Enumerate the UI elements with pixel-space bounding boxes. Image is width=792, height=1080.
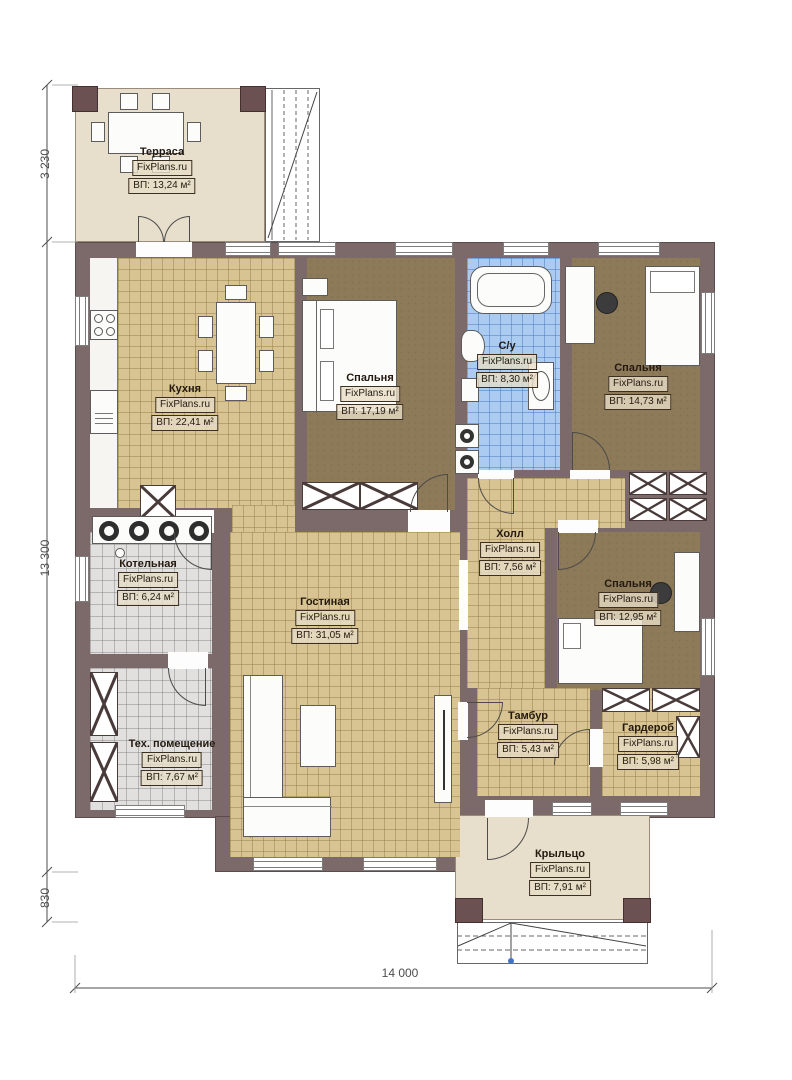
- brand-watermark: FixPlans.ru: [295, 610, 355, 626]
- room-name: Котельная: [119, 558, 177, 570]
- room-label-terrace: Терраса FixPlans.ru ВП: 13,24 м²: [128, 146, 195, 194]
- bedroom1-wardrobe: [360, 482, 418, 510]
- room-name: Холл: [496, 528, 524, 540]
- brand-watermark: FixPlans.ru: [498, 724, 558, 740]
- brand-watermark: FixPlans.ru: [477, 354, 537, 370]
- porch-steps: [457, 922, 648, 964]
- room-name: Тех. помещение: [129, 738, 216, 750]
- room-label-living: Гостиная FixPlans.ru ВП: 31,05 м²: [291, 596, 358, 644]
- room-label-boiler: Котельная FixPlans.ru ВП: 6,24 м²: [117, 558, 179, 606]
- window-bathroom: [503, 242, 549, 256]
- brand-watermark: FixPlans.ru: [598, 592, 658, 608]
- window-kitchen-left: [75, 296, 89, 346]
- room-label-tech: Тех. помещение FixPlans.ru ВП: 7,67 м²: [129, 738, 216, 786]
- kitchen-chair: [225, 285, 247, 300]
- window-tambour-bottom: [552, 802, 592, 816]
- room-area: ВП: 6,24 м²: [117, 590, 179, 606]
- room-name: Кухня: [169, 383, 201, 395]
- room-area: ВП: 12,95 м²: [594, 610, 661, 626]
- window-tech-bottom: [115, 805, 185, 818]
- brand-watermark: FixPlans.ru: [480, 542, 540, 558]
- porch-post-right: [623, 898, 651, 923]
- bedroom2-door-gap: [570, 470, 610, 479]
- room-label-tambour: Тамбур FixPlans.ru ВП: 5,43 м²: [497, 710, 559, 758]
- kitchen-living-opening: [232, 505, 295, 535]
- window-living-1: [253, 857, 323, 871]
- brand-watermark: FixPlans.ru: [155, 397, 215, 413]
- room-name: Тамбур: [508, 710, 548, 722]
- terrace-chair: [152, 93, 170, 110]
- front-door-gap: [485, 800, 533, 817]
- room-label-wardrobe: Гардероб FixPlans.ru ВП: 5,98 м²: [617, 722, 679, 770]
- dryer-machine: [455, 450, 479, 474]
- living-hall-opening: [459, 560, 468, 630]
- terrace-chair: [120, 93, 138, 110]
- single-bed: [645, 266, 700, 366]
- tech-door-gap: [168, 652, 208, 669]
- dim-total-width: 14 000: [355, 966, 445, 980]
- room-area: ВП: 22,41 м²: [151, 415, 218, 431]
- brand-watermark: FixPlans.ru: [608, 376, 668, 392]
- desk: [674, 552, 700, 632]
- room-name: Гостиная: [300, 596, 350, 608]
- room-area: ВП: 7,91 м²: [529, 880, 591, 896]
- tech-storage: [90, 742, 118, 802]
- brand-watermark: FixPlans.ru: [618, 736, 678, 752]
- tech-storage: [90, 672, 118, 736]
- hall-closet: [629, 472, 667, 495]
- room-name: Спальня: [346, 372, 394, 384]
- desk-chair: [596, 292, 618, 314]
- bedroom1-door-gap: [408, 510, 450, 532]
- brand-watermark: FixPlans.ru: [340, 386, 400, 402]
- kitchen-chair: [198, 350, 213, 372]
- room-area: ВП: 31,05 м²: [291, 628, 358, 644]
- hall-closet: [669, 472, 707, 495]
- wardrobe-shelf: [676, 716, 700, 758]
- room-area: ВП: 8,30 м²: [476, 372, 538, 388]
- window-top-2: [278, 242, 336, 256]
- window-wardrobe-bottom: [620, 802, 668, 816]
- terrace-stairs: [265, 88, 320, 242]
- kitchen-chair: [259, 316, 274, 338]
- brand-watermark: FixPlans.ru: [530, 862, 590, 878]
- room-area: ВП: 7,67 м²: [141, 770, 203, 786]
- desk: [565, 266, 595, 344]
- room-label-bathroom: С/у FixPlans.ru ВП: 8,30 м²: [476, 340, 538, 388]
- room-label-hall: Холл FixPlans.ru ВП: 7,56 м²: [479, 528, 541, 576]
- room-label-bedroom2: Спальня FixPlans.ru ВП: 14,73 м²: [604, 362, 671, 410]
- bathtub: [470, 266, 552, 314]
- room-name: Спальня: [604, 578, 652, 590]
- room-label-bedroom1: Спальня FixPlans.ru ВП: 17,19 м²: [336, 372, 403, 420]
- brand-watermark: FixPlans.ru: [132, 160, 192, 176]
- washing-machine: [455, 424, 479, 448]
- kitchen-chair: [225, 386, 247, 401]
- coffee-table: [300, 705, 336, 767]
- room-name: Терраса: [140, 146, 184, 158]
- room-area: ВП: 5,98 м²: [617, 754, 679, 770]
- room-area: ВП: 7,56 м²: [479, 560, 541, 576]
- brand-watermark: FixPlans.ru: [118, 572, 178, 588]
- kitchen-chair: [259, 350, 274, 372]
- brand-watermark: FixPlans.ru: [142, 752, 202, 768]
- terrace-chair: [91, 122, 105, 142]
- sofa-chaise: [243, 797, 331, 837]
- room-area: ВП: 5,43 м²: [497, 742, 559, 758]
- kitchen-chair: [198, 316, 213, 338]
- window-living-2: [363, 857, 437, 871]
- terrace-post-left: [72, 86, 98, 112]
- room-name: Гардероб: [622, 722, 674, 734]
- window-bedroom2-top: [598, 242, 660, 256]
- kitchen-cabinet: [90, 390, 118, 434]
- room-label-porch: Крыльцо FixPlans.ru ВП: 7,91 м²: [529, 848, 591, 896]
- room-label-bedroom3: Спальня FixPlans.ru ВП: 12,95 м²: [594, 578, 661, 626]
- window-bedroom1: [395, 242, 453, 256]
- room-name: Спальня: [614, 362, 662, 374]
- wardrobe-shelf: [652, 688, 700, 712]
- tv-unit: [434, 695, 452, 803]
- window-boiler-left: [75, 556, 89, 602]
- room-name: С/у: [498, 340, 515, 352]
- bedroom1-wardrobe: [302, 482, 360, 510]
- terrace-post-right: [240, 86, 266, 112]
- porch-post-left: [455, 898, 483, 923]
- dim-terrace-depth: 3 230: [38, 129, 52, 199]
- wardrobe-door-gap: [589, 729, 603, 767]
- single-bed: [558, 618, 643, 684]
- room-area: ВП: 13,24 м²: [128, 178, 195, 194]
- stove: [90, 310, 118, 340]
- dim-house-depth: 13 300: [38, 523, 52, 593]
- terrace-chair: [187, 122, 201, 142]
- room-area: ВП: 17,19 м²: [336, 404, 403, 420]
- hall-closet: [629, 498, 667, 521]
- room-name: Крыльцо: [535, 848, 585, 860]
- room-area: ВП: 14,73 м²: [604, 394, 671, 410]
- hall-closet: [669, 498, 707, 521]
- terrace-door-gap: [136, 242, 192, 257]
- kitchen-counter: [90, 258, 118, 508]
- dim-porch-depth: 830: [38, 863, 52, 933]
- window-top-1: [225, 242, 271, 256]
- floor-drain: [115, 548, 125, 558]
- wardrobe-shelf: [602, 688, 650, 712]
- kitchen-table: [216, 302, 256, 384]
- room-label-kitchen: Кухня FixPlans.ru ВП: 22,41 м²: [151, 383, 218, 431]
- window-bedroom2-right: [701, 292, 715, 354]
- kitchen-island-unit: [140, 485, 176, 519]
- floor-plan-canvas: 3 230 13 300 830 14 000 Терраса FixPlans…: [0, 0, 792, 1080]
- nightstand: [302, 278, 328, 296]
- window-bedroom3-right: [701, 618, 715, 676]
